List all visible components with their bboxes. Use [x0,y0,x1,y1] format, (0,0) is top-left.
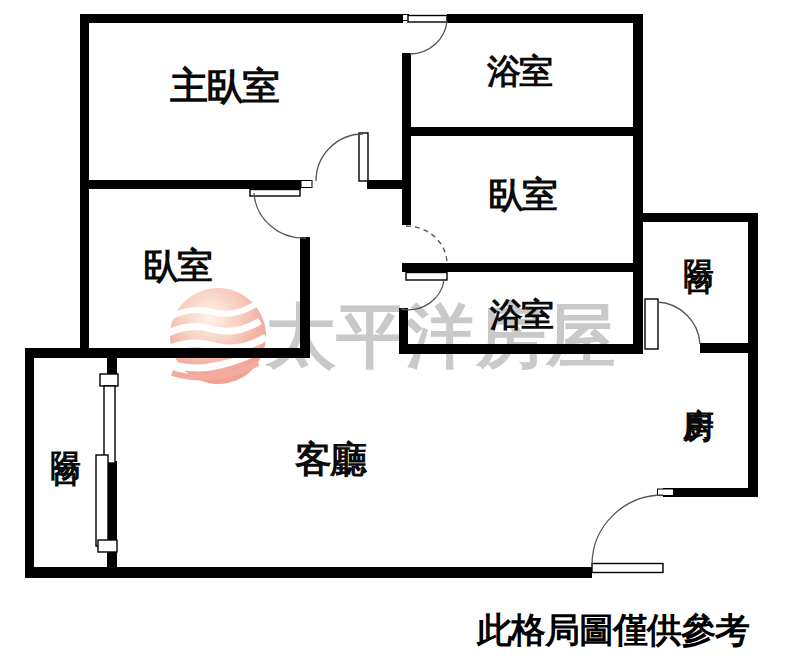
wall-balcony-kitchen-divider [700,343,758,353]
room-label-kitchen: 廚房 [683,382,714,386]
wall-bedroom-mid-bottom [402,263,643,272]
room-label-living-room: 客廳 [295,441,365,478]
wall-top-left [84,14,403,23]
floor-plan-canvas: 太平洋房屋 [0,0,800,667]
slide-door-cap-top [100,374,118,386]
wall-slide-stub-bottom [107,551,117,568]
door-leaf-entry [592,564,663,573]
wall-hallway-left [300,237,310,358]
wall-west-horizontal [25,348,310,358]
door-leaf-top-bath [408,16,447,23]
door-arc-balcony-right [657,302,700,344]
room-label-balcony-right: 陽台 [683,235,714,239]
door-arc-master [316,134,363,181]
wall-right-column [633,14,643,354]
room-label-balcony-left: 陽台 [50,427,81,431]
door-leaf-bedroom-left [250,190,300,197]
wall-master-bottom-right [367,180,402,189]
wall-far-right [748,213,758,497]
disclaimer-caption: 此格局圖僅供參考 [477,612,749,647]
slide-door-panel-right [104,386,115,463]
room-label-bathroom-top: 浴室 [487,54,551,88]
door-leaf-balcony-right [645,299,658,349]
wall-bath-top-bottom [402,127,643,136]
watermark-logo-icon [164,288,266,384]
room-label-bathroom-middle: 浴室 [490,298,552,331]
wall-bath-mid-bottom [399,344,643,354]
floor-plan-drawing [0,0,800,667]
wall-kitchen-bottom [663,488,758,497]
slide-door-cap-bottom [98,540,117,552]
room-label-bedroom-left: 臥室 [143,248,211,284]
wall-balcony-right-top [633,213,758,222]
slide-door-panel-left [96,455,108,546]
door-arc-bedroom-mid [406,226,447,263]
wall-master-bottom [84,180,301,189]
door-arc-entry [592,495,663,564]
wall-master-divider [402,53,411,225]
door-leaf-master [359,133,368,181]
wall-top-right [447,14,643,23]
door-arc-top-bath [410,21,447,54]
notch-master-jamb [301,181,312,188]
wall-bottom [25,567,592,578]
wall-balcony-left-outer [25,348,34,578]
door-leaf-bath-mid [406,273,447,281]
room-label-master-bedroom: 主臥室 [170,67,278,105]
walls [25,14,758,578]
room-label-bedroom-right: 臥室 [488,177,556,213]
door-arc-bath-mid [401,280,444,310]
door-arc-bedroom-left [254,193,306,238]
